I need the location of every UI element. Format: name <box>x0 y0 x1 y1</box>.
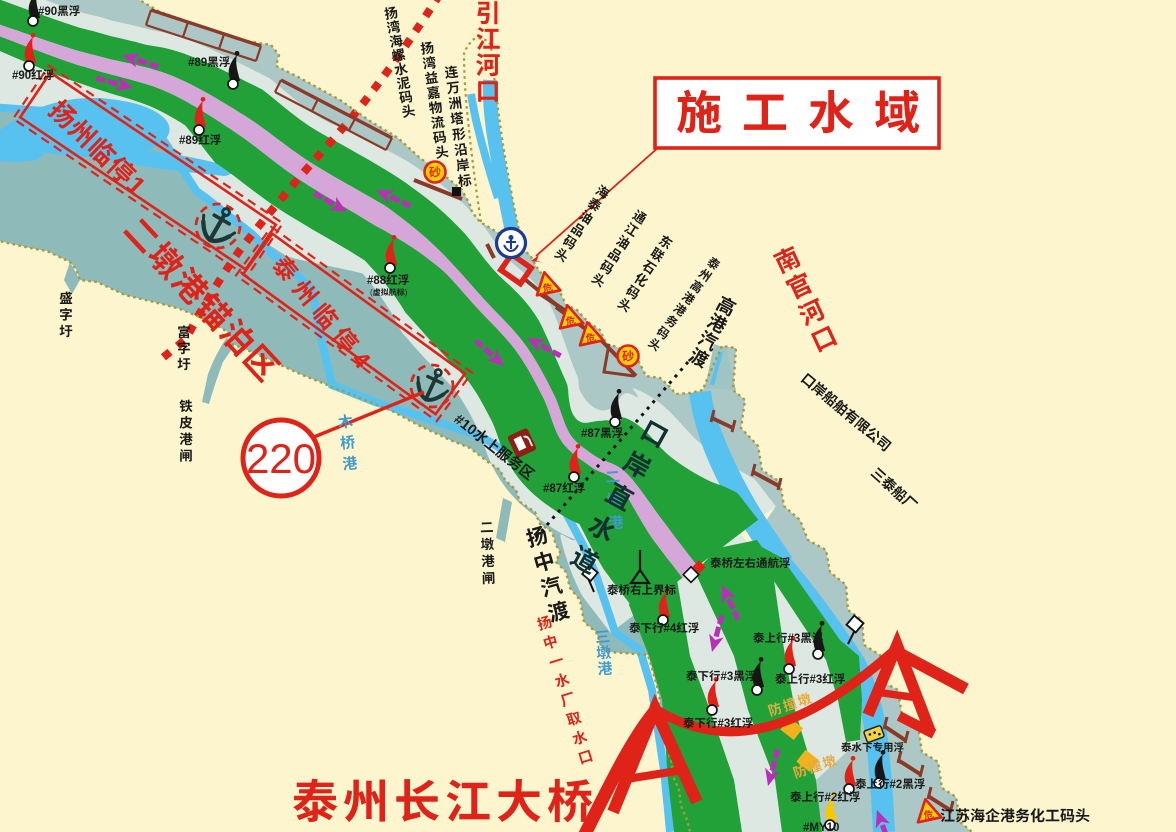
svg-text:): ) <box>405 288 408 297</box>
svg-text:#MY10: #MY10 <box>803 822 839 832</box>
svg-text:#89: #89 <box>188 57 207 69</box>
svg-text:(: ( <box>370 288 373 297</box>
svg-text:#3: #3 <box>721 671 734 683</box>
svg-text:#3: #3 <box>718 718 731 730</box>
svg-text:#90: #90 <box>12 70 31 82</box>
svg-text:#88: #88 <box>367 275 387 287</box>
svg-text:#87: #87 <box>543 483 562 495</box>
svg-text:#90: #90 <box>38 6 57 18</box>
svg-text:#89: #89 <box>179 135 198 147</box>
svg-text:#3: #3 <box>810 674 823 686</box>
svg-text:#87: #87 <box>581 428 600 440</box>
svg-text:220: 220 <box>246 435 316 482</box>
svg-text:#2: #2 <box>890 779 903 791</box>
svg-text:#3: #3 <box>788 633 801 645</box>
svg-text:#2: #2 <box>825 792 838 804</box>
svg-text:#4: #4 <box>664 623 677 635</box>
